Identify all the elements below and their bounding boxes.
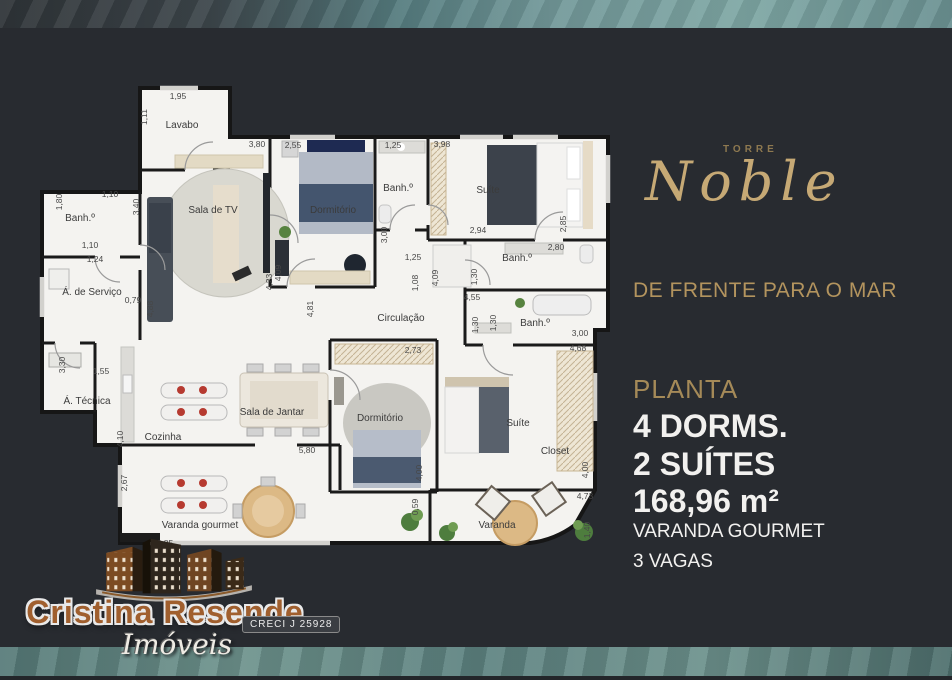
- dim-label: 2,55: [285, 140, 302, 150]
- room-label-dorm2: Dormitório: [357, 413, 404, 424]
- dim-label: 4,00: [580, 461, 590, 478]
- dim-label: 1,40: [582, 521, 592, 538]
- room-label-servico: Á. de Serviço: [62, 285, 122, 298]
- dim-label: 4,09: [273, 264, 283, 281]
- room-label-jantar: Sala de Jantar: [240, 407, 305, 418]
- dim-label: 0,59: [410, 498, 420, 515]
- dim-label: 1,24: [87, 254, 104, 264]
- dim-label: 4,55: [464, 292, 481, 302]
- dim-label: 3,00: [572, 328, 589, 338]
- dim-label: 5,80: [299, 445, 316, 455]
- room-label-banh1: Banh.º: [383, 183, 413, 194]
- planta-heading: PLANTA: [633, 374, 738, 405]
- dim-label: 2,94: [470, 225, 487, 235]
- stat-vagas: 3 VAGAS: [633, 551, 713, 573]
- room-label-banh-suite1: Banh.º: [502, 253, 532, 264]
- dim-label: 1,95: [170, 91, 187, 101]
- dim-label: 3,00: [379, 226, 389, 243]
- dim-label: 1,30: [470, 316, 480, 333]
- tv-unit: [263, 173, 270, 273]
- dim-label: 0,79: [125, 295, 142, 305]
- dim-label: 3,98: [434, 139, 451, 149]
- agency-logo: Cristina Resende CRECI J 25928 Imóveis: [10, 528, 350, 678]
- dim-label: 3,40: [131, 198, 141, 215]
- room-label-banh-tl: Banh.º: [65, 213, 95, 224]
- dim-label: 1,30: [469, 268, 479, 285]
- dim-label: 1,80: [54, 193, 64, 210]
- room-label-cozinha: Cozinha: [145, 432, 182, 443]
- dim-label: 4,88: [145, 300, 155, 317]
- dim-label: 4,10: [115, 430, 125, 447]
- buildings-icon: [88, 528, 260, 602]
- dim-label: 1,25: [385, 140, 402, 150]
- dim-label: 1,10: [82, 240, 99, 250]
- dim-label: 1,10: [102, 189, 119, 199]
- project-name: Noble: [645, 150, 844, 213]
- stat-dorms: 4 DORMS.: [633, 408, 788, 445]
- dim-label: 2,80: [548, 242, 565, 252]
- tagline: DE FRENTE PARA O MAR: [633, 279, 897, 303]
- dim-label: 4,81: [305, 300, 315, 317]
- flyer: Lavabo Sala de TV Dormitório Banh.º Suít…: [0, 0, 952, 680]
- dim-label: 3,80: [249, 139, 266, 149]
- bed-suite2: [445, 387, 479, 453]
- floor-plan: Lavabo Sala de TV Dormitório Banh.º Suít…: [35, 85, 612, 548]
- room-label-circulacao: Circulação: [377, 313, 425, 324]
- room-label-banh2: Banh.º: [520, 318, 550, 329]
- dim-label: 3,30: [57, 356, 67, 373]
- room-label-suite2: Suíte: [506, 418, 530, 429]
- room-label-suite1: Suíte: [476, 185, 500, 196]
- room-label-closet: Closet: [541, 446, 570, 457]
- dim-label: 2,85: [558, 215, 568, 232]
- dim-label: 4,68: [570, 343, 587, 353]
- stat-area: 168,96 m²: [633, 483, 779, 520]
- stat-suites: 2 SUÍTES: [633, 446, 775, 483]
- suite1-wardrobe: [431, 143, 446, 235]
- dim-label: 2,67: [119, 474, 129, 491]
- dim-label: 1,08: [410, 274, 420, 291]
- room-label-varanda: Varanda: [478, 520, 516, 531]
- room-label-tecnica: Á. Técnica: [63, 394, 110, 407]
- dim-label: 1,25: [405, 252, 422, 262]
- dim-label: 4,73: [577, 491, 594, 501]
- dim-label: 2,73: [405, 345, 422, 355]
- dim-label: 4,09: [430, 269, 440, 286]
- room-label-sala-tv: Sala de TV: [188, 205, 238, 216]
- stat-varanda-gourmet: VARANDA GOURMET: [633, 521, 825, 543]
- top-marble-band: [0, 0, 952, 28]
- dim-label: 1,11: [139, 109, 149, 125]
- dim-label: 4,23: [264, 273, 274, 290]
- room-label-dorm1: Dormitório: [310, 205, 357, 216]
- dim-label: 1,30: [488, 314, 498, 331]
- agency-subtitle: Imóveis: [72, 628, 282, 661]
- room-label-lavabo: Lavabo: [166, 120, 199, 131]
- dim-label: 4,00: [414, 464, 424, 481]
- dim-label: 1,55: [93, 366, 110, 376]
